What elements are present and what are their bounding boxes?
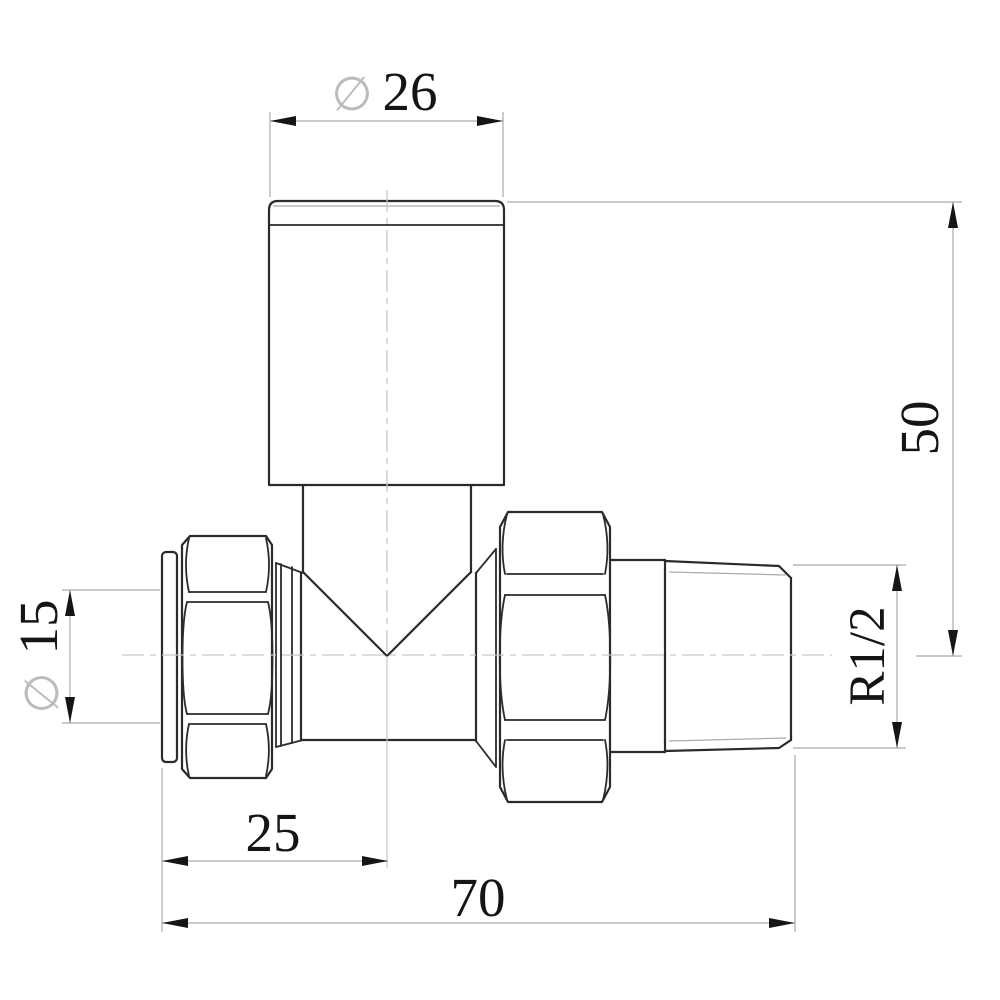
left-cone-top-diagonal (276, 563, 303, 573)
collar-outline (162, 552, 177, 762)
left-compression-nut (182, 536, 273, 778)
valve-body (301, 573, 476, 741)
dim-knob-diameter: ∅ 26 (270, 61, 503, 197)
dimension-value-knob-diameter: 26 (383, 61, 438, 122)
dim-center-offset: 25 (162, 768, 388, 932)
thread-bottom-edge (665, 740, 791, 751)
left-nut-corner-arc-bl (186, 724, 189, 776)
left-nut-facet-arc-left (183, 602, 188, 714)
dimension-value-offset: 25 (246, 802, 301, 863)
right-union-nut (500, 512, 611, 802)
technical-drawing-canvas: ∅ 26 15 ∅ 50 R1/2 25 (0, 0, 1000, 1000)
diameter-symbol: ∅ (15, 673, 70, 714)
male-thread (610, 560, 791, 752)
dimension-arrow-left (162, 856, 188, 866)
dimension-arrow-right (362, 856, 388, 866)
left-nut-corner-arc-tr (266, 538, 269, 592)
right-cone-top-diagonal (476, 549, 496, 573)
dim-inlet-diameter: 15 ∅ (8, 590, 160, 723)
dimension-arrow-up (892, 565, 902, 591)
dimension-arrow-right (477, 116, 503, 126)
left-cone-bottom-diagonal (276, 740, 303, 747)
right-nut-outline (500, 512, 610, 802)
left-nut-outline (182, 536, 272, 778)
dimension-arrow-up (948, 202, 958, 228)
centerlines (122, 190, 832, 868)
right-cone (476, 549, 496, 767)
dimension-value-length: 70 (451, 867, 506, 928)
valve-technical-drawing: ∅ 26 15 ∅ 50 R1/2 25 (0, 0, 1000, 1000)
dimension-arrow-left (270, 116, 296, 126)
dimension-arrow-right (769, 918, 795, 928)
dimension-arrow-down (892, 722, 902, 748)
thread-top-edge (665, 561, 791, 578)
dimension-arrow-left (162, 918, 188, 928)
left-nut-corner-arc-br (266, 724, 269, 776)
diameter-symbol: ∅ (332, 67, 373, 122)
right-cone-bottom-diagonal (476, 741, 496, 767)
left-nut-corner-arc-tl (186, 538, 189, 592)
inlet-collar (162, 552, 177, 762)
dimension-value-inlet-diameter: 15 (8, 600, 69, 655)
dim-thread-size: R1/2 (793, 565, 906, 748)
dimension-value-thread: R1/2 (840, 606, 896, 705)
dimension-arrow-down (948, 630, 958, 656)
thread-minor-line-bottom (669, 738, 786, 741)
dimension-value-height: 50 (889, 401, 950, 456)
thread-minor-line-top (669, 572, 786, 575)
